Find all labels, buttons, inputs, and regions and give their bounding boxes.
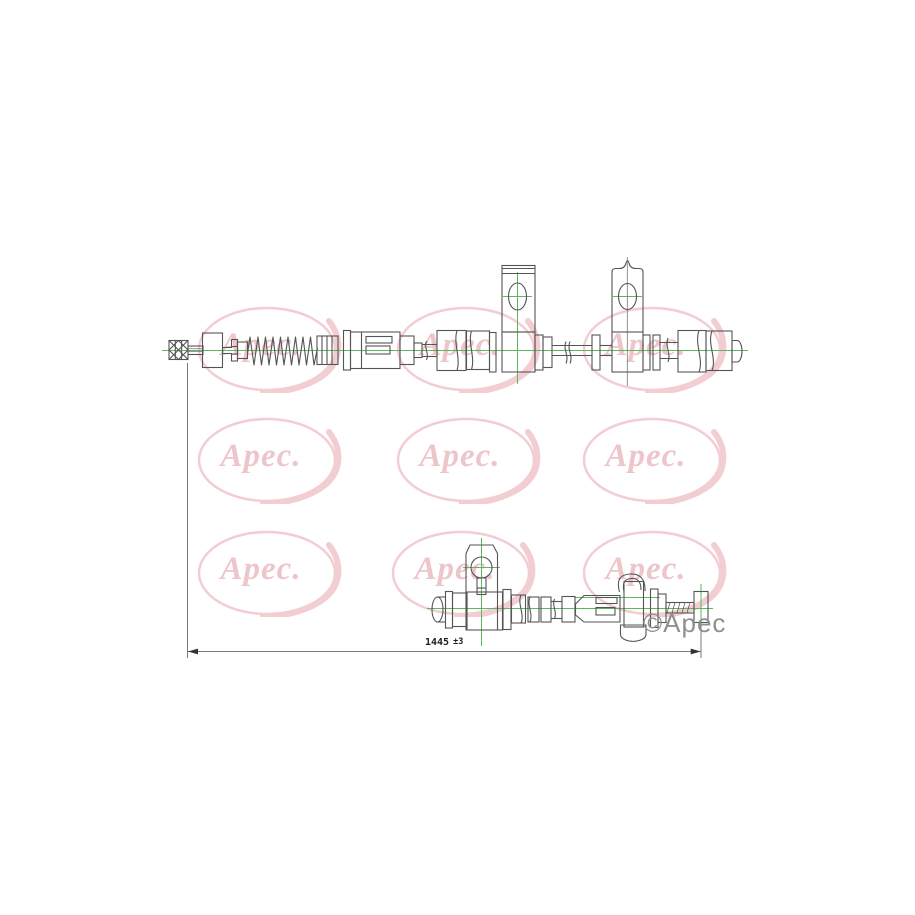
page: Apec. Apec. Apec. Apec. Apec. xyxy=(0,0,915,915)
top-cable-view xyxy=(162,257,748,386)
dimension-arrow-left xyxy=(188,649,198,655)
dimension-value: 1445 xyxy=(425,637,449,648)
copyright-watermark: ©Apec xyxy=(643,608,726,639)
cable-technical-drawing xyxy=(0,0,915,915)
dimension-label: 1445±3 xyxy=(425,637,463,648)
dimension-tolerance: ±3 xyxy=(453,637,463,647)
dimension-arrow-right xyxy=(691,649,701,655)
